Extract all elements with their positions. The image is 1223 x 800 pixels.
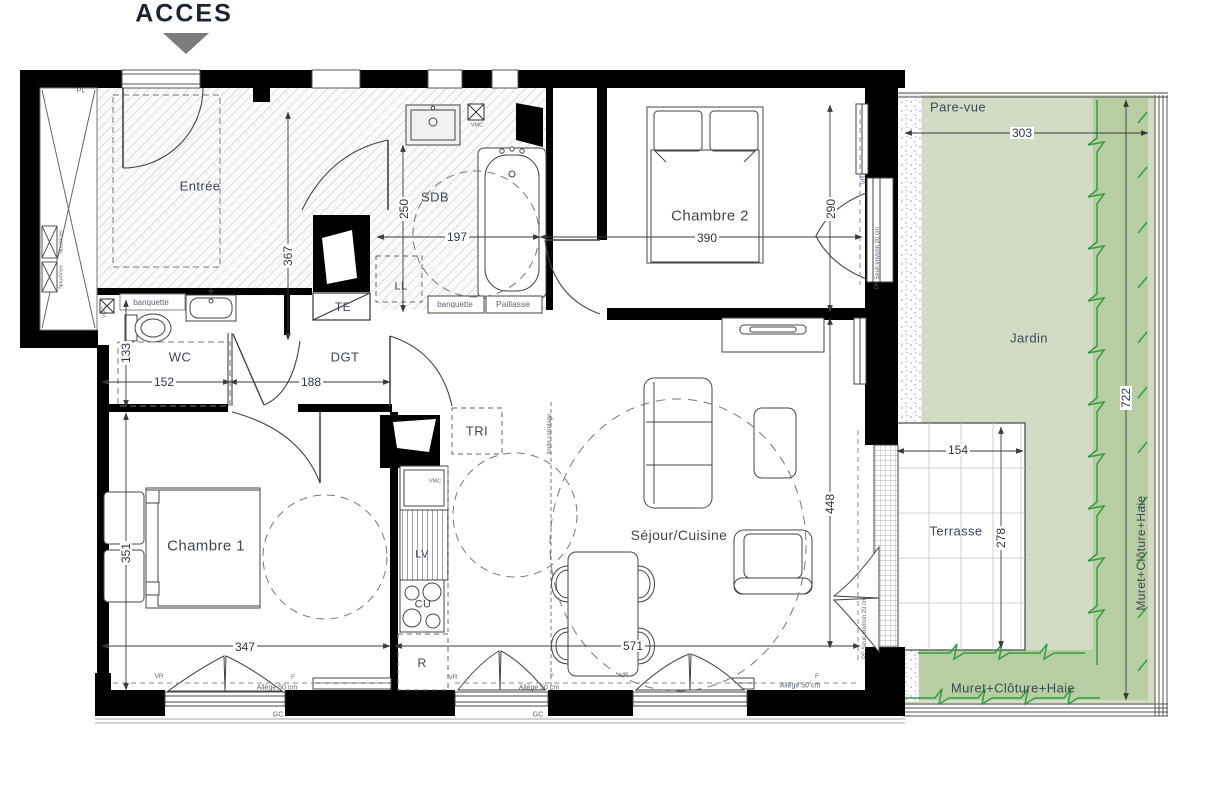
label-allege-1: Allège 50 cm bbox=[257, 685, 297, 692]
room-label-sejour: Séjour/Cuisine bbox=[631, 528, 728, 542]
dim-jardin-height: 722 bbox=[1120, 386, 1132, 410]
room-label-dgt: DGT bbox=[331, 351, 360, 364]
dim-dgt-width: 188 bbox=[299, 376, 323, 388]
label-banquette-sdb: banquette bbox=[437, 301, 473, 309]
dim-chambre2-width: 390 bbox=[695, 232, 719, 244]
room-label-chambre2: Chambre 2 bbox=[671, 209, 749, 224]
label-pare-vue: Pare-vue bbox=[930, 101, 986, 114]
dim-chambre1-height: 351 bbox=[120, 541, 132, 565]
label-vmc-wc: VMC bbox=[102, 306, 108, 318]
dim-chambre1-width: 347 bbox=[233, 641, 257, 653]
dim-wc-width: 152 bbox=[152, 376, 176, 388]
label-vr-3: VR bbox=[619, 673, 628, 680]
label-tri: TRI bbox=[466, 425, 488, 438]
dim-sdb-width: 197 bbox=[445, 231, 469, 243]
dim-chambre2-height: 290 bbox=[825, 197, 837, 221]
label-nourrices-2: Nourrices bbox=[59, 265, 65, 289]
dim-entree-depth: 367 bbox=[282, 244, 294, 268]
dim-sdb-height: 250 bbox=[398, 197, 410, 221]
room-label-sdb: SDB bbox=[421, 191, 449, 204]
label-gc-2: GC bbox=[533, 712, 544, 719]
label-cuisson: CU bbox=[415, 600, 432, 611]
label-seuil-chambre2: PF Seuil environ 20 cm bbox=[875, 227, 881, 289]
label-tableau-electrique: TE bbox=[335, 301, 351, 313]
floor-plan: ACCES Entrée SDB Chambre 2 WC DGT Chambr… bbox=[0, 0, 1223, 800]
label-gc-1: GC bbox=[273, 712, 284, 719]
duct-shaft-opening bbox=[322, 230, 357, 284]
label-banquette-wc: banquette bbox=[133, 299, 169, 307]
room-label-terrasse: Terrasse bbox=[929, 525, 982, 538]
room-label-entree: Entrée bbox=[180, 180, 221, 193]
label-vr-2: VR bbox=[448, 675, 457, 682]
label-muret-horizontal: Muret+Clôture+Haie bbox=[951, 682, 1075, 695]
dim-terrasse-height: 278 bbox=[995, 526, 1007, 550]
label-allege-2: Allège 50 cm bbox=[519, 685, 559, 692]
label-paillasse: Paillasse bbox=[496, 300, 530, 309]
label-vmc-cuisine: VMC bbox=[429, 479, 441, 485]
label-allege-3: Allège 50 cm bbox=[780, 683, 820, 690]
room-label-jardin: Jardin bbox=[1010, 332, 1048, 345]
kitchen-duct-opening bbox=[393, 419, 436, 452]
label-seuil-sejour: PF Seuil environ 20 cm bbox=[862, 597, 868, 659]
dim-wc-height: 133 bbox=[120, 341, 132, 365]
label-vr-4: VR bbox=[861, 175, 868, 184]
room-label-wc: WC bbox=[169, 351, 191, 364]
label-lave-vaisselle: LV bbox=[415, 550, 428, 561]
dim-terrasse-width: 154 bbox=[946, 444, 970, 456]
label-refrigerateur: R bbox=[417, 657, 426, 669]
label-limite-carrelage: limite carrelage bbox=[547, 414, 553, 455]
label-lave-linge: LL bbox=[394, 282, 407, 293]
access-arrow-icon bbox=[163, 33, 209, 54]
room-label-chambre1: Chambre 1 bbox=[167, 539, 245, 554]
label-vr-1: VR bbox=[154, 674, 163, 681]
dim-sejour-width: 571 bbox=[621, 640, 645, 652]
label-vmc-sdb: VMC bbox=[471, 123, 483, 129]
label-f-1: F bbox=[291, 675, 295, 682]
label-nourrices-1: Nourrices bbox=[59, 230, 65, 254]
label-f-2: F bbox=[550, 674, 554, 681]
dim-jardin-width: 303 bbox=[1010, 127, 1034, 139]
dim-sejour-height: 448 bbox=[824, 492, 836, 516]
label-muret-vertical: Muret+Clôture+Haie bbox=[1135, 495, 1147, 610]
closet-pl bbox=[40, 88, 97, 330]
label-f-3: F bbox=[815, 674, 819, 681]
label-placard: PL bbox=[77, 88, 86, 95]
access-label: ACCES bbox=[135, 2, 233, 27]
